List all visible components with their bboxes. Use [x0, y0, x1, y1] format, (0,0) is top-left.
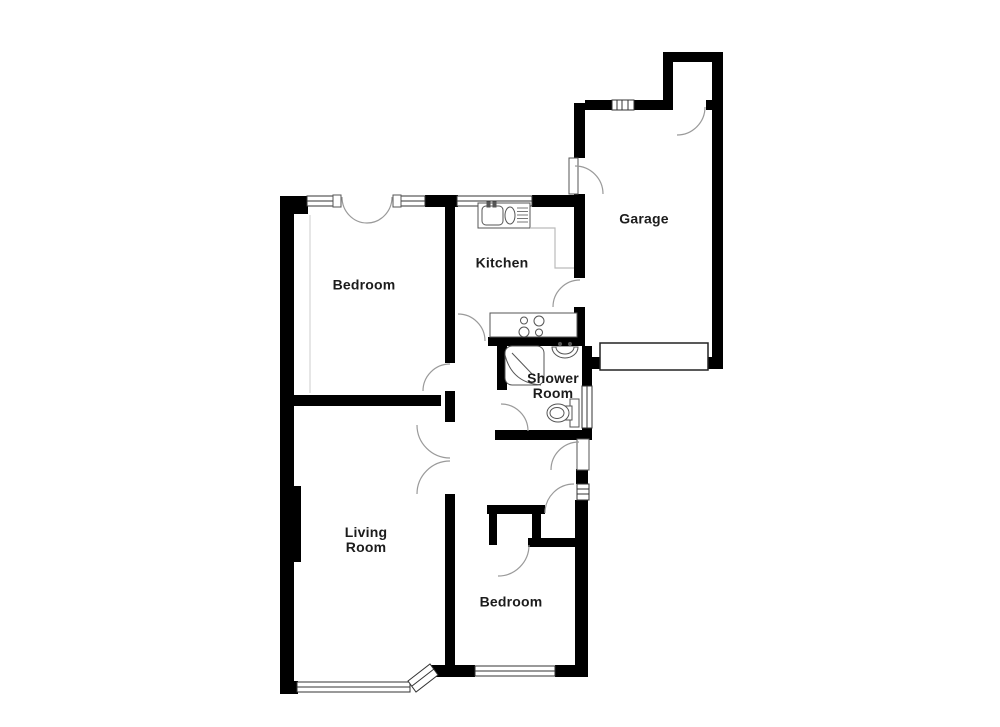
cooker-hob	[490, 313, 577, 337]
kitchen-sink-unit	[478, 202, 530, 228]
window-bedroom-bottom	[475, 666, 555, 676]
room-label-living-room: LivingRoom	[345, 525, 387, 555]
chimney-breast	[281, 486, 301, 562]
window-living-room	[297, 682, 410, 692]
living-room-double-door-arc-lower	[417, 461, 450, 494]
french-door-jamb-right	[393, 195, 401, 207]
window-living-room-angled	[408, 664, 438, 692]
garage-side-door-leaf	[569, 158, 578, 194]
floor-plan-drawing	[0, 0, 1000, 727]
garage-rear-door-arc	[677, 107, 705, 135]
kitchen-door-arc	[458, 314, 485, 341]
garage-side-door-arc	[575, 166, 603, 194]
living-room-double-door-arc-upper	[417, 425, 450, 458]
bedroom-top-door-arc	[423, 364, 450, 391]
room-label-kitchen: Kitchen	[476, 256, 529, 271]
room-label-shower-room: ShowerRoom	[527, 371, 579, 401]
shower-room-door-arc	[501, 404, 528, 431]
kitchen-garage-door-arc	[553, 280, 580, 307]
bedroom-bottom-door-arc	[545, 484, 574, 513]
cupboard-door-arc	[498, 545, 529, 576]
window-hallway	[577, 484, 589, 500]
window-bedroom-top-left	[307, 196, 333, 206]
garage-door	[600, 343, 708, 370]
room-label-garage: Garage	[619, 212, 668, 227]
window-bedroom-top-right	[399, 196, 425, 206]
back-door-arc	[551, 442, 579, 470]
back-door-leaf	[577, 439, 589, 470]
french-doors-arc-right	[367, 197, 392, 223]
room-label-bedroom-top: Bedroom	[333, 278, 396, 293]
toilet	[547, 399, 579, 427]
room-label-bedroom-bottom: Bedroom	[480, 595, 543, 610]
window-garage	[612, 100, 634, 110]
french-doors-arc-left	[342, 197, 367, 223]
floor-plan: Bedroom Kitchen Garage ShowerRoom Living…	[0, 0, 1000, 727]
kitchen-worktop	[530, 228, 574, 268]
french-door-jamb-left	[333, 195, 341, 207]
window-shower-room	[582, 386, 592, 428]
